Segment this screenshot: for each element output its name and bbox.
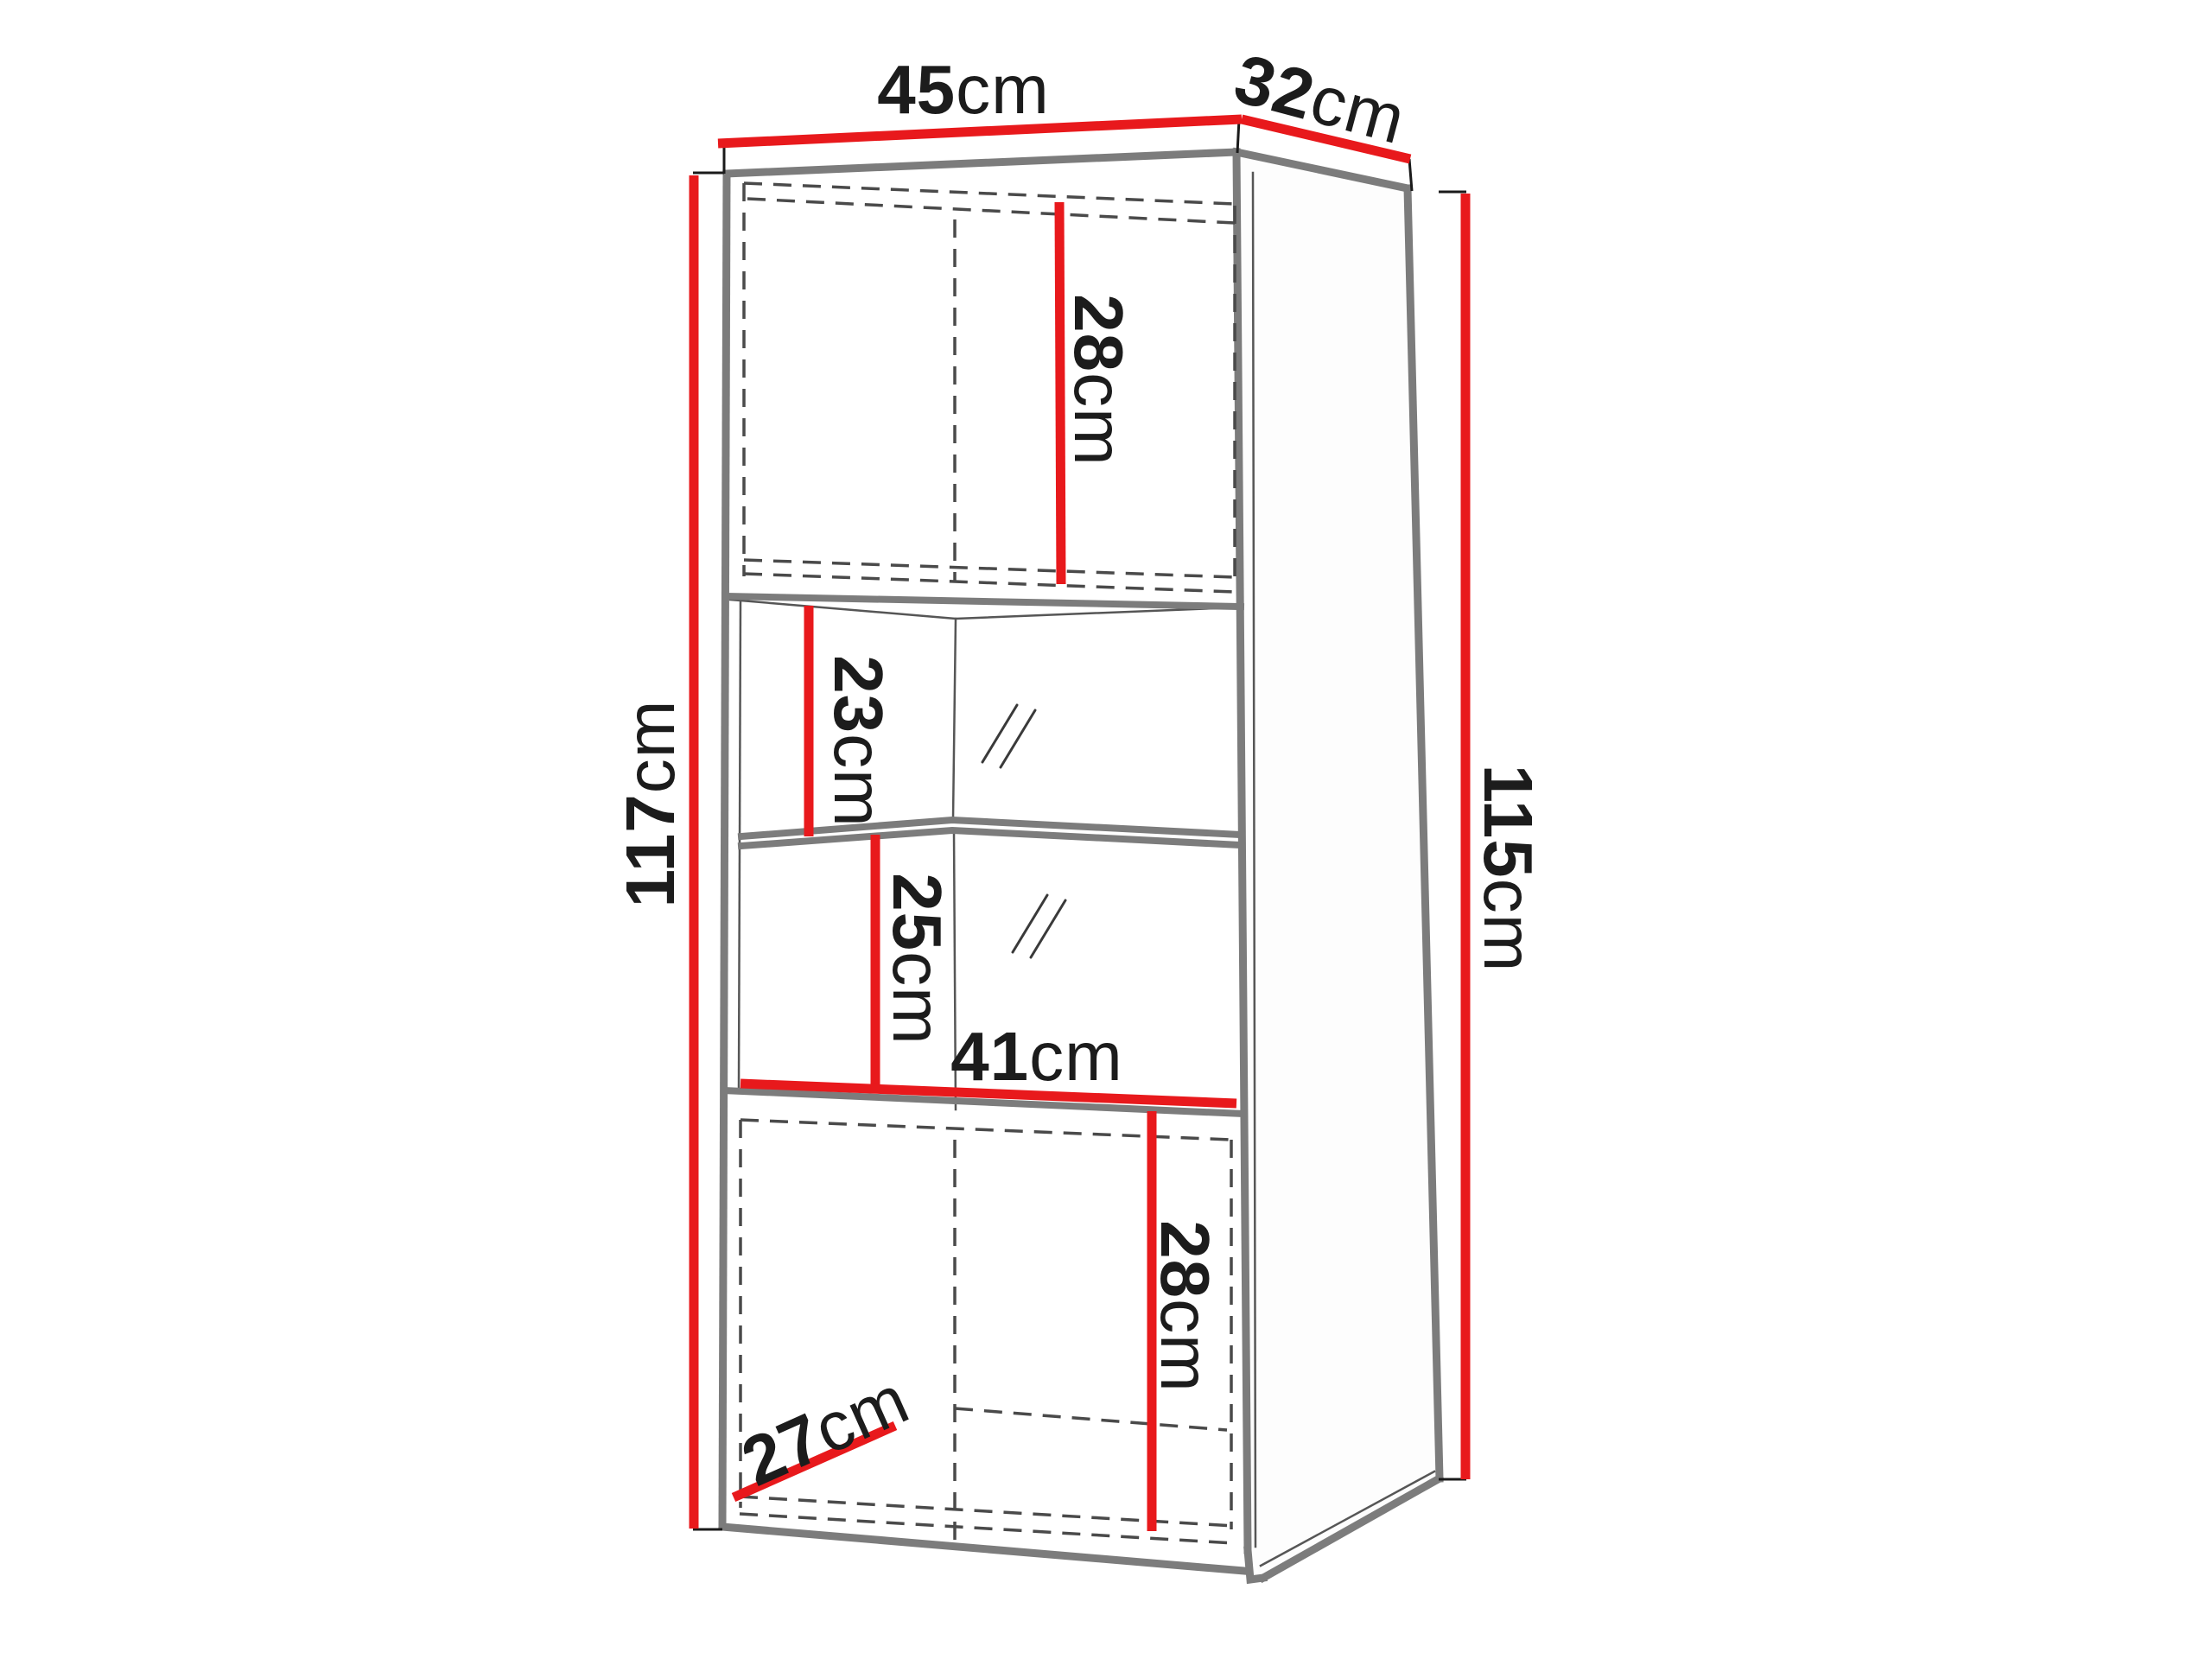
- tick-top-apex: [1237, 119, 1239, 153]
- dim-label-right-height: 115cm: [1471, 765, 1548, 973]
- dim-label-lower-shelf-gap: 25cm: [880, 873, 957, 1046]
- front-left-edge: [722, 174, 727, 1527]
- diagram-canvas: 45cm 32cm 117cm 115cm 28cm 23cm 25cm 41c…: [0, 0, 2212, 1659]
- cabinet-dimension-drawing: 45cm 32cm 117cm 115cm 28cm 23cm 25cm 41c…: [0, 0, 2212, 1659]
- dim-label-left-height: 117cm: [612, 700, 689, 908]
- dim-label-top-width: 45cm: [877, 51, 1050, 128]
- dim-label-lower-cabinet-height: 28cm: [1147, 1220, 1224, 1393]
- dim-label-upper-shelf-gap: 23cm: [821, 655, 898, 828]
- dim-label-interior-width: 41cm: [950, 1018, 1123, 1095]
- dim-label-upper-cabinet-height: 28cm: [1061, 294, 1138, 467]
